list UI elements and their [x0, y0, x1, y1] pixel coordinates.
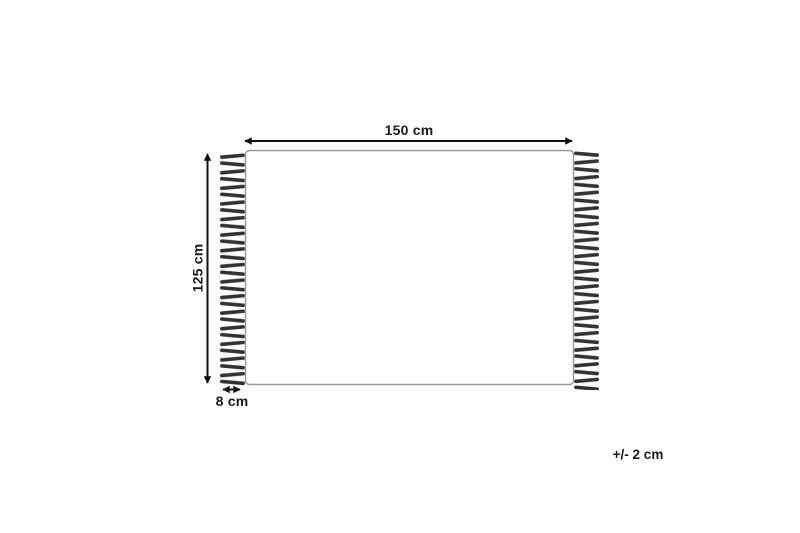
height-dimension-label: 125 cm	[190, 244, 206, 293]
rug-dimension-diagram: 150 cm 125 cm 8 cm +/- 2 cm	[0, 0, 800, 533]
tolerance-label: +/- 2 cm	[613, 447, 664, 462]
width-dimension-label: 150 cm	[385, 122, 434, 138]
right-fringe	[574, 151, 600, 390]
left-fringe	[219, 153, 245, 386]
rug-diagram-svg: 150 cm 125 cm 8 cm +/- 2 cm	[0, 0, 800, 533]
fringe-dimension-label: 8 cm	[216, 393, 249, 409]
rug-outline	[246, 151, 574, 385]
